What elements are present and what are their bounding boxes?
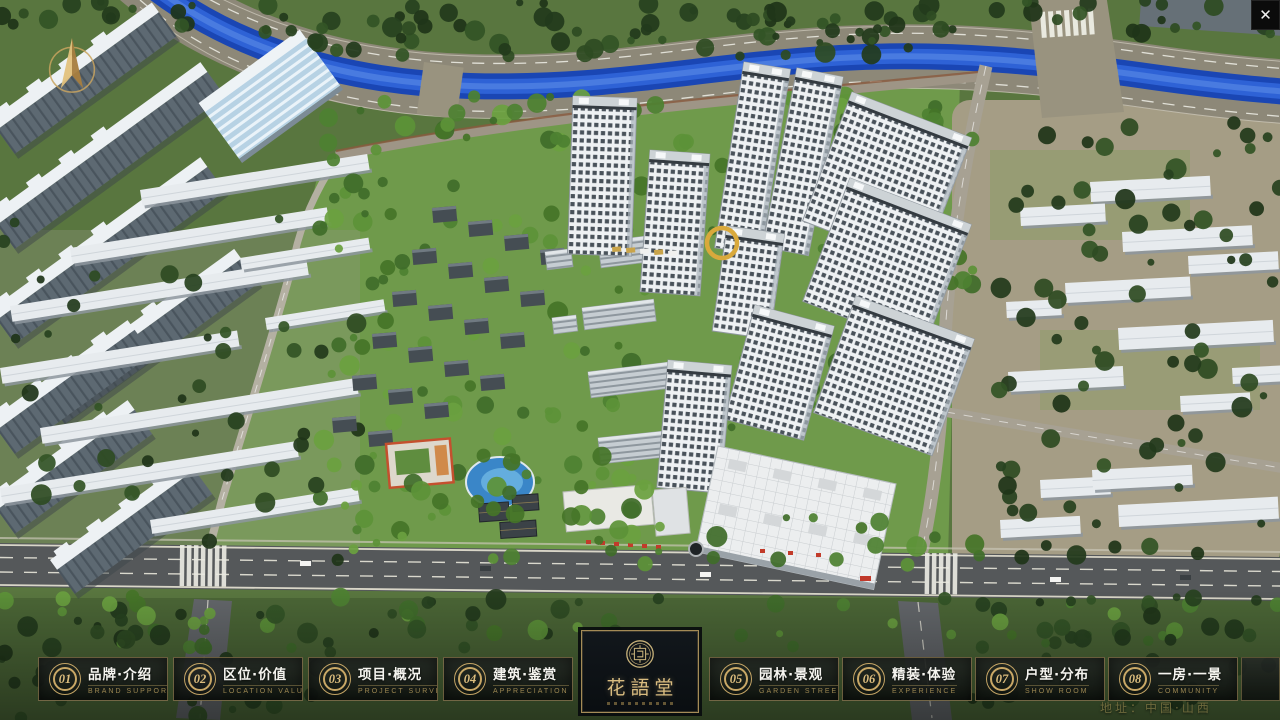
brand-title: 花語堂	[601, 679, 678, 698]
brand-subtitle-decoration	[607, 702, 673, 705]
nav-item-subtitle: EXPERIENCE	[892, 685, 957, 695]
nav-item-subtitle: BRAND SUPPORT	[88, 685, 168, 695]
nav-item-floorplan[interactable]: 07 户型·分布 SHOW ROOM	[975, 657, 1105, 701]
masterplan-render[interactable]	[0, 0, 1280, 720]
nav-item-brand[interactable]: 01 品牌·介绍 BRAND SUPPORT	[38, 657, 168, 701]
nav-item-garden[interactable]: 05 园林·景观 GARDEN STREET	[709, 657, 839, 701]
nav-number-badge: 08	[1119, 663, 1151, 695]
masterplan-svg	[0, 0, 1280, 720]
nav-item-rooms[interactable]: 08 一房·一景 COMMUNITY	[1108, 657, 1238, 701]
nav-item-project[interactable]: 03 项目·概况 PROJECT SURVEY	[308, 657, 438, 701]
nav-item-subtitle: SHOW ROOM	[1025, 685, 1089, 695]
nav-item-title: 户型·分布	[1025, 663, 1089, 683]
nav-number-badge: 05	[720, 663, 752, 695]
nav-number-badge: 07	[986, 663, 1018, 695]
nav-item-title: 项目·概况	[358, 663, 437, 683]
nav-item-subtitle: PROJECT SURVEY	[358, 685, 438, 695]
nav-item-subtitle: GARDEN STREET	[759, 685, 839, 695]
nav-item-location[interactable]: 02 区位·价值 LOCATION VALUE	[173, 657, 303, 701]
nav-item-title: 品牌·介绍	[88, 663, 167, 683]
nav-item-subtitle: COMMUNITY	[1158, 685, 1219, 695]
close-button[interactable]: ✕	[1251, 0, 1280, 30]
nav-number-badge: 06	[853, 663, 885, 695]
nav-filler	[1241, 657, 1280, 701]
nav-number-badge: 03	[319, 663, 351, 695]
nav-number-badge: 02	[184, 663, 216, 695]
logo-panel[interactable]: 花語堂	[581, 630, 699, 713]
nav-item-title: 园林·景观	[759, 663, 838, 683]
nav-item-title: 精装·体验	[892, 663, 957, 683]
brand-seal-icon	[624, 638, 656, 675]
nav-number-badge: 01	[49, 663, 81, 695]
address-label: 地址：中国·山西	[1100, 699, 1212, 716]
nav-item-architecture[interactable]: 04 建筑·鉴赏 APPRECIATION	[443, 657, 573, 701]
nav-item-interior[interactable]: 06 精装·体验 EXPERIENCE	[842, 657, 972, 701]
nav-item-title: 区位·价值	[223, 663, 302, 683]
sales-presentation-app: ✕ 01 品牌·介绍 BRAND SUPPORT 02 区位·价值 LOCATI…	[0, 0, 1280, 720]
nav-item-title: 一房·一景	[1158, 663, 1222, 683]
nav-item-subtitle: LOCATION VALUE	[223, 685, 303, 695]
entrance-circle	[689, 542, 703, 556]
nav-number-badge: 04	[454, 663, 486, 695]
nav-item-title: 建筑·鉴赏	[493, 663, 569, 683]
nav-item-subtitle: APPRECIATION	[493, 685, 569, 695]
